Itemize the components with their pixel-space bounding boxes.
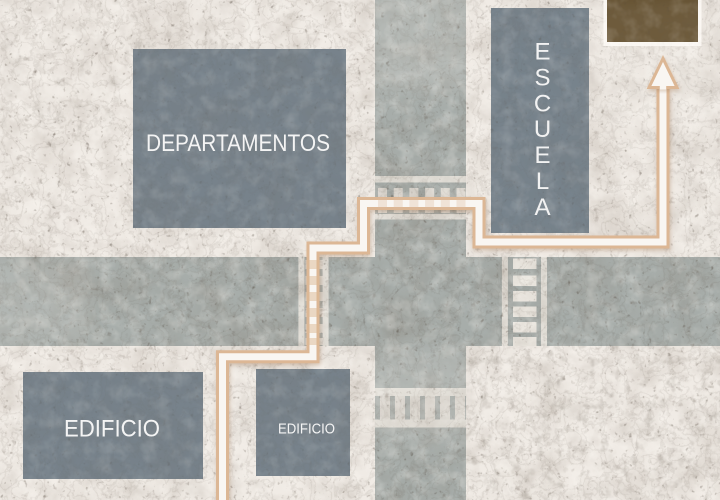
svg-text:EDIFICIO: EDIFICIO — [64, 416, 160, 443]
svg-text:L: L — [536, 168, 549, 195]
svg-text:A: A — [534, 194, 550, 221]
svg-text:S: S — [534, 64, 550, 91]
svg-text:U: U — [534, 116, 551, 143]
svg-text:DEPARTAMENTOS: DEPARTAMENTOS — [146, 130, 330, 157]
svg-text:E: E — [534, 142, 550, 169]
svg-text:C: C — [534, 90, 551, 117]
svg-text:EDIFICIO: EDIFICIO — [278, 422, 335, 438]
svg-text:E: E — [534, 39, 550, 66]
